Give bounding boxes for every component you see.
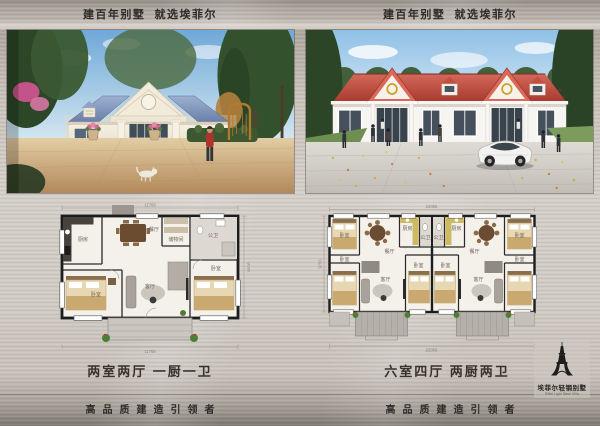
room-label: 公卫 <box>433 235 443 241</box>
room-label-storage: 储物间 <box>168 236 183 243</box>
room-label: 公卫 <box>420 235 430 241</box>
room-label: 餐厅 <box>469 248 479 255</box>
layout-caption-right: 六室四厅 两厨两卫 <box>337 361 557 380</box>
brand-name-en: Eiffel Light Steel Villa <box>537 392 587 396</box>
dim-label-bottom: 11768 <box>144 349 156 354</box>
dim-label-top: 22056 <box>426 204 438 209</box>
left-house-scene <box>7 30 294 193</box>
footer-divider <box>0 394 600 395</box>
dim-label-side: 9756 <box>318 259 323 269</box>
dim-label-side: 9168 <box>247 262 251 272</box>
floor-plan-right: 22056 22056 9756 <box>318 203 546 353</box>
right-house-scene <box>306 30 593 193</box>
room-label: 客厅 <box>473 276 483 283</box>
room-label: 卧室 <box>514 256 524 263</box>
room-label: 客厅 <box>380 276 390 283</box>
room-label: 餐厅 <box>384 248 394 255</box>
layout-caption-left: 两室两厅 一厨一卫 <box>40 361 260 380</box>
poster-canvas: 建百年别墅 就选埃菲尔 建百年别墅 就选埃菲尔 <box>0 0 600 426</box>
room-label: 卧室 <box>413 262 423 269</box>
room-label-bedroom-right: 卧室 <box>211 265 221 272</box>
dim-label-top: 11768 <box>144 203 156 208</box>
room-label: 卧室 <box>514 232 524 239</box>
entry-porch <box>102 318 198 342</box>
brand-logo: 埃菲尔轻钢别墅 Eiffel Light Steel Villa <box>534 341 590 398</box>
room-label-bedroom-left: 卧室 <box>91 291 101 298</box>
footer-slogan-right: 高品质建造引领者 <box>300 401 600 416</box>
footer-slogan-left: 高品质建造引领者 <box>0 401 300 416</box>
room-label-kitchen: 厨房 <box>78 236 88 243</box>
room-label-dining: 餐厅 <box>149 226 159 233</box>
room-label: 卧室 <box>339 232 349 239</box>
room-label-bath: 公卫 <box>208 233 218 239</box>
room-label: 卧室 <box>440 262 450 269</box>
dim-label-bottom: 22056 <box>426 348 438 353</box>
bed <box>194 276 234 310</box>
right-house-photo <box>306 30 593 193</box>
room-label: 厨房 <box>402 225 412 232</box>
room-label-living: 客厅 <box>145 283 155 290</box>
room-label: 卧室 <box>339 256 349 263</box>
floor-plan-left: 11768 11768 9168 <box>50 200 250 355</box>
eiffel-tower-icon <box>534 342 590 380</box>
brand-name-cn: 埃菲尔轻钢别墅 <box>534 385 590 392</box>
header-slogan-left: 建百年别墅 就选埃菲尔 <box>0 0 300 28</box>
left-house-photo <box>7 30 294 193</box>
room-label: 厨房 <box>451 225 461 232</box>
header-slogan-right: 建百年别墅 就选埃菲尔 <box>300 0 600 28</box>
